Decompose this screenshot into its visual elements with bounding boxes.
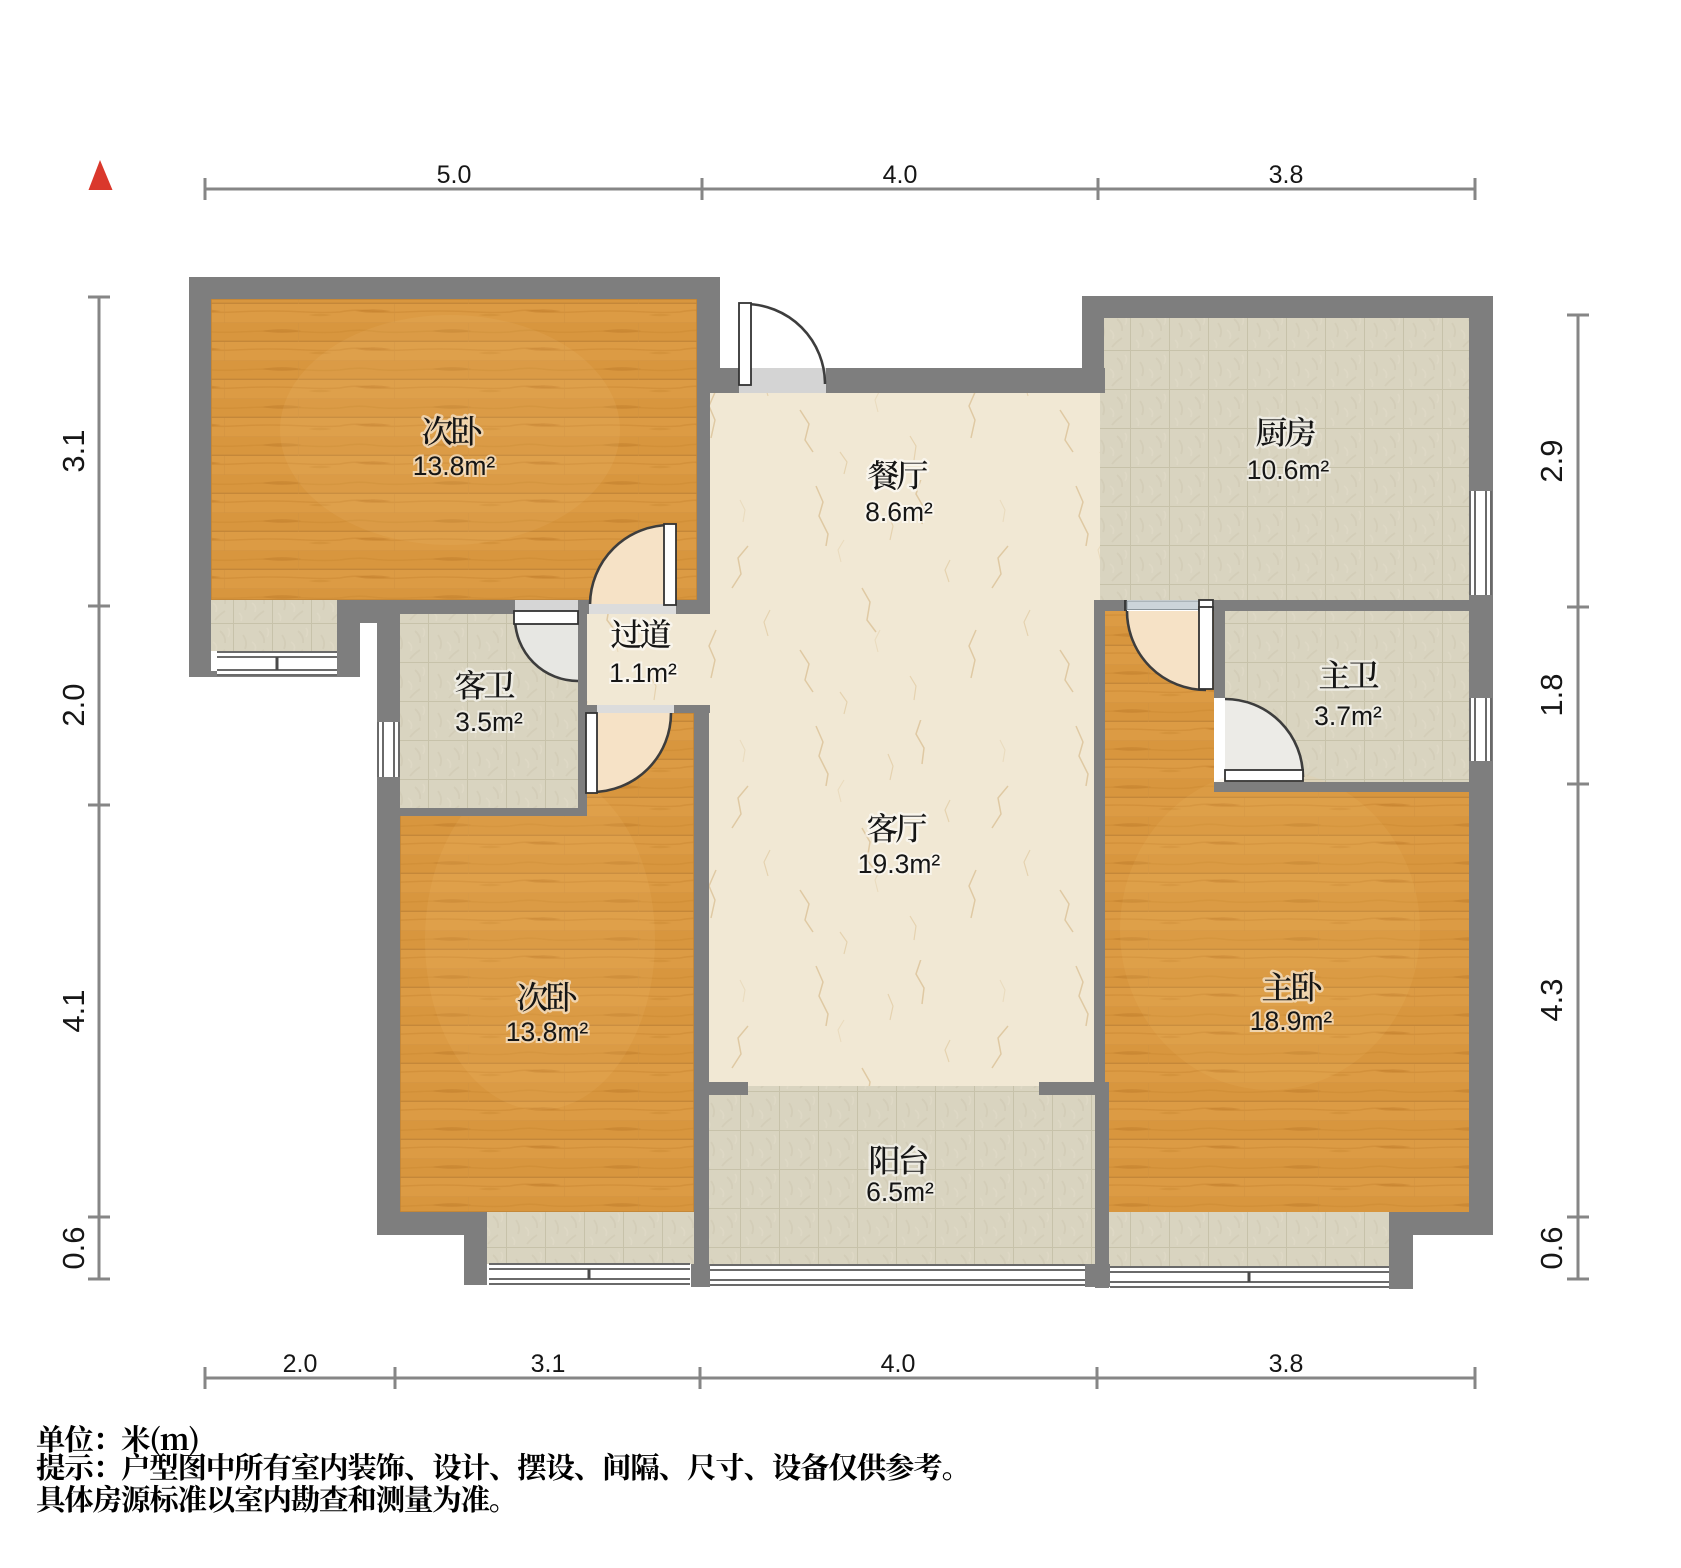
svg-text:4.0: 4.0 (883, 161, 918, 189)
svg-text:19.3m²: 19.3m² (858, 849, 941, 879)
svg-text:5.0: 5.0 (437, 161, 472, 189)
svg-text:8.6m²: 8.6m² (865, 497, 933, 527)
svg-text:3.8: 3.8 (1269, 161, 1304, 189)
svg-text:3.5m²: 3.5m² (455, 707, 523, 737)
svg-text:0.6: 0.6 (56, 1226, 91, 1269)
svg-text:18.9m²: 18.9m² (1250, 1006, 1333, 1036)
svg-text:2.0: 2.0 (283, 1350, 318, 1378)
svg-text:4.1: 4.1 (56, 989, 91, 1032)
svg-text:3.7m²: 3.7m² (1314, 701, 1382, 731)
svg-text:10.6m²: 10.6m² (1247, 455, 1330, 485)
svg-text:1.1m²: 1.1m² (609, 658, 677, 688)
svg-text:3.1: 3.1 (56, 429, 91, 472)
svg-text:6.5m²: 6.5m² (866, 1177, 934, 1207)
svg-text:1.8: 1.8 (1534, 673, 1569, 716)
svg-text:2.9: 2.9 (1534, 439, 1569, 482)
svg-text:13.8m²: 13.8m² (413, 451, 496, 481)
svg-text:13.8m²: 13.8m² (506, 1017, 589, 1047)
svg-text:0.6: 0.6 (1534, 1226, 1569, 1269)
svg-text:2.0: 2.0 (56, 683, 91, 726)
svg-text:3.1: 3.1 (531, 1350, 566, 1378)
svg-text:4.3: 4.3 (1534, 978, 1569, 1021)
svg-text:3.8: 3.8 (1269, 1350, 1304, 1378)
svg-text:4.0: 4.0 (881, 1350, 916, 1378)
